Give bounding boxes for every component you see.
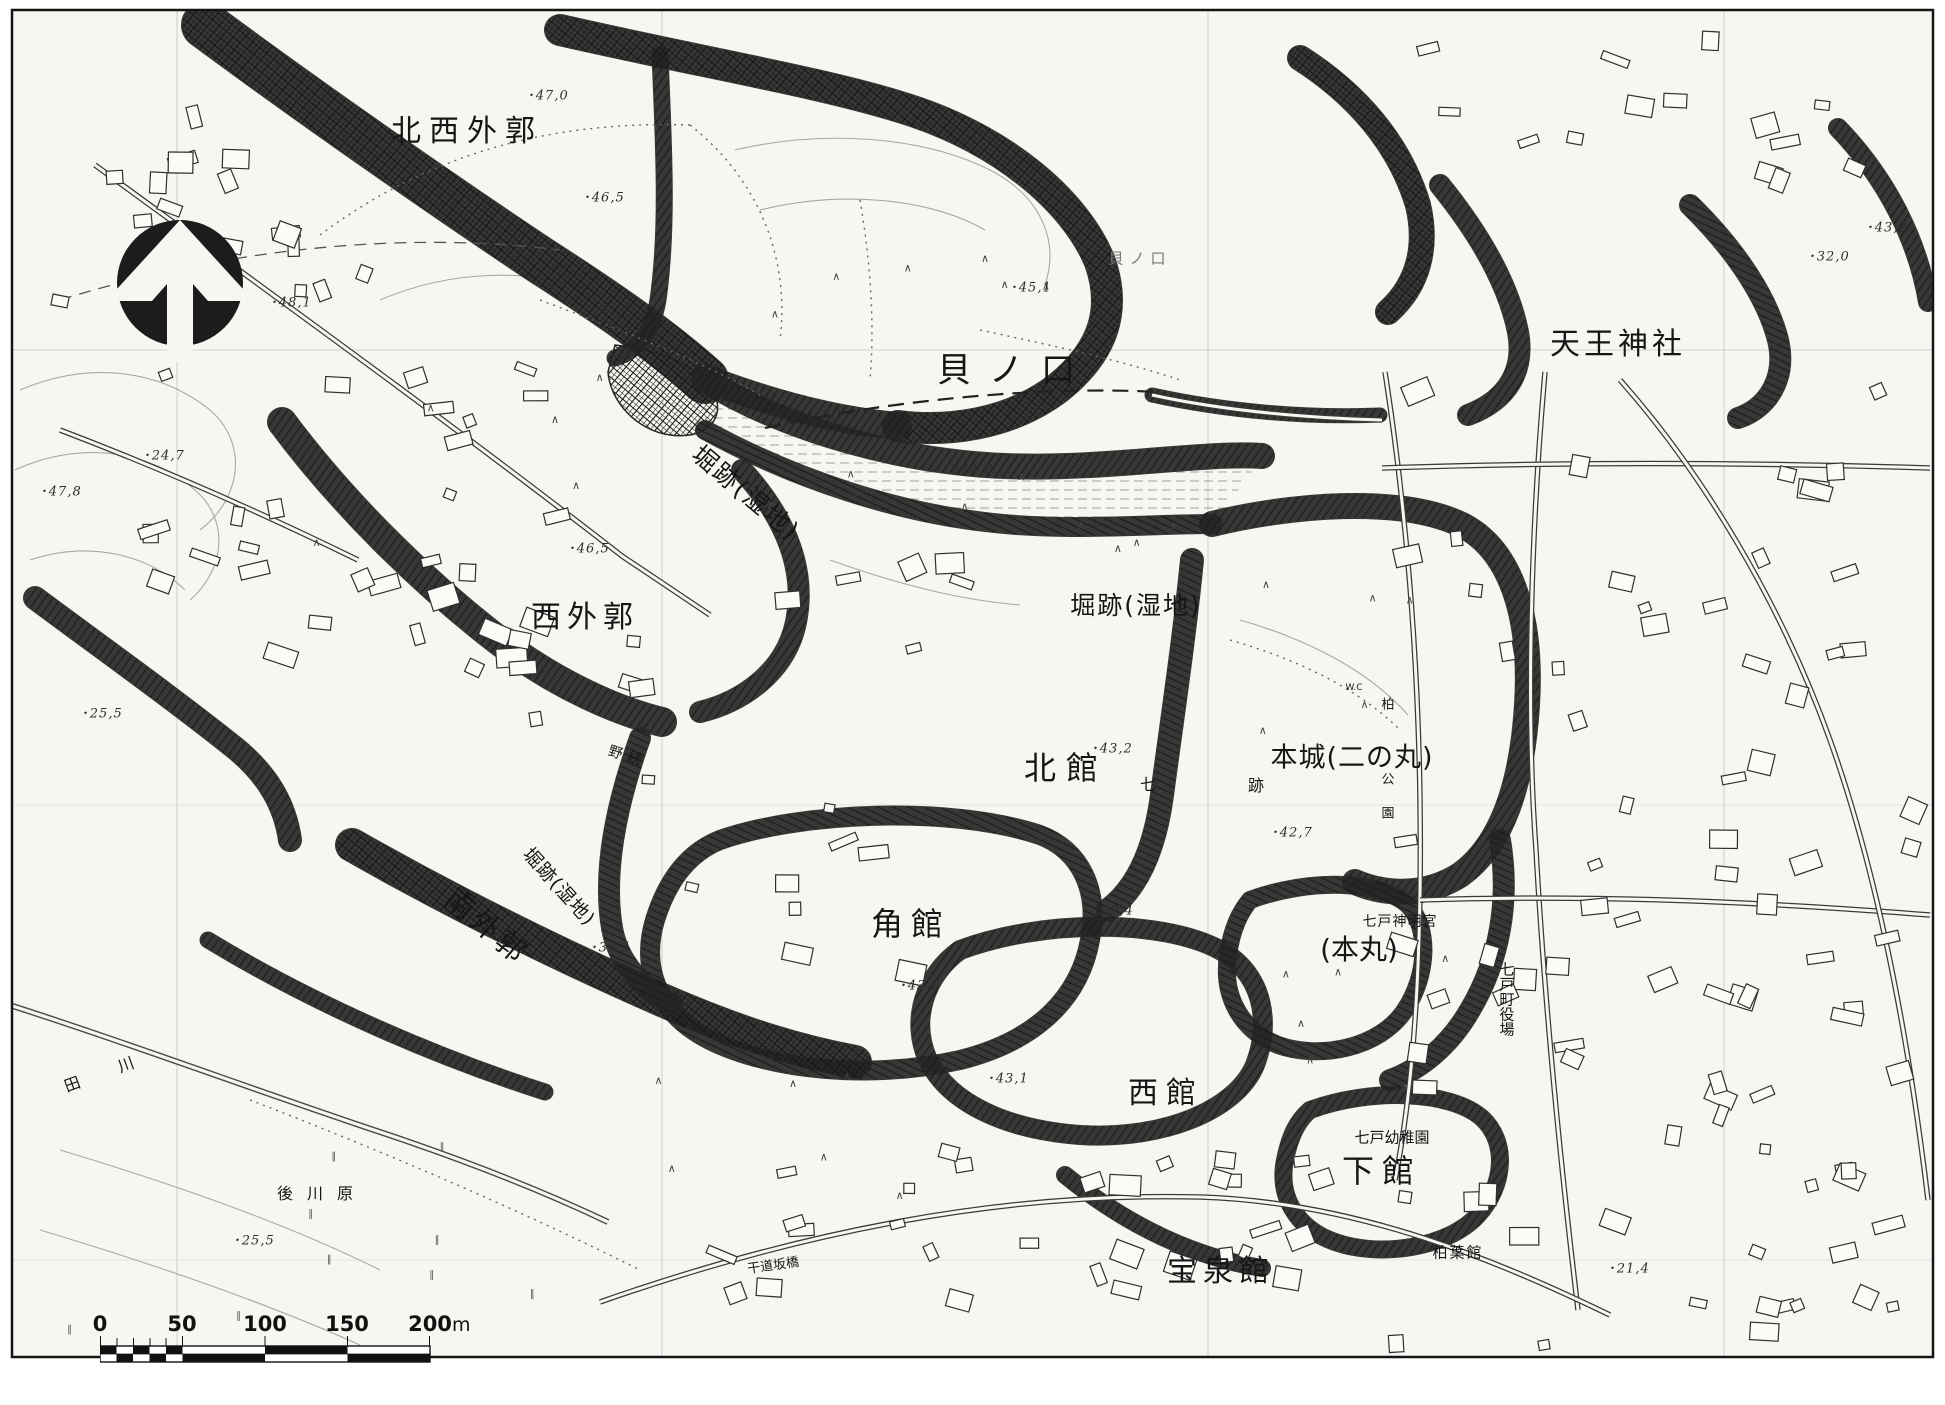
svg-text:∧: ∧ bbox=[1259, 724, 1267, 737]
label-wc: W.C bbox=[1345, 683, 1362, 693]
spot-elevation: 46,5 bbox=[585, 191, 624, 206]
svg-text:∧: ∧ bbox=[1133, 536, 1141, 549]
label-shichinohe-kindergarten: 七戸幼稚園 bbox=[1354, 1127, 1429, 1148]
spot-elevation: 46,5 bbox=[570, 542, 609, 557]
label-char-kashiwa: 柏 bbox=[1381, 694, 1394, 713]
label-nishi-gaikaku: 西外郭 bbox=[531, 592, 639, 636]
label-tenno-jinja: 天王神社 bbox=[1550, 319, 1686, 363]
svg-text:∧: ∧ bbox=[1170, 520, 1178, 533]
spot-elevation: 44,8 bbox=[954, 463, 993, 478]
svg-text:∧: ∧ bbox=[551, 413, 559, 426]
spot-elevation: 24,7 bbox=[145, 449, 184, 464]
label-shimodate: 下館 bbox=[1342, 1146, 1422, 1192]
svg-text:∧: ∧ bbox=[668, 1162, 676, 1175]
label-hosenkan: 宝泉館 bbox=[1167, 1246, 1275, 1290]
scale-unit: m bbox=[452, 1314, 471, 1336]
spot-elevation: 47,0 bbox=[529, 89, 568, 104]
label-kainokuchi: 貝ノ口 bbox=[937, 343, 1093, 392]
spot-elevation: 42,7 bbox=[1273, 826, 1312, 841]
svg-text:∧: ∧ bbox=[312, 536, 320, 549]
spot-elevation: 43,1 bbox=[989, 1072, 1028, 1087]
label-hakuyokan: 柏葉館 bbox=[1432, 1242, 1483, 1263]
svg-text:∧: ∧ bbox=[1077, 518, 1085, 531]
spot-elevation: 43,2 bbox=[1868, 221, 1907, 236]
svg-text:∧: ∧ bbox=[1262, 578, 1270, 591]
svg-text:∧: ∧ bbox=[961, 500, 969, 513]
label-ushirokawara: 後川原 bbox=[277, 1180, 367, 1204]
svg-text:∧: ∧ bbox=[596, 371, 604, 384]
svg-text:∧: ∧ bbox=[1360, 698, 1368, 711]
scale-tick-100: 100 bbox=[243, 1312, 287, 1336]
label-shichinohe-shinmeigu: 七戸神明宮 bbox=[1363, 911, 1438, 931]
scale-tick-0: 0 bbox=[93, 1312, 108, 1336]
label-char-ko: 公 bbox=[1381, 769, 1394, 788]
svg-text:∧: ∧ bbox=[847, 468, 855, 481]
svg-text:∧: ∧ bbox=[1441, 952, 1449, 965]
svg-text:∧: ∧ bbox=[771, 308, 779, 321]
label-nishidate: 西館 bbox=[1128, 1068, 1204, 1112]
svg-text:∧: ∧ bbox=[655, 1074, 663, 1087]
spot-elevation: 25,5 bbox=[235, 1234, 274, 1249]
label-honjo-ninomaru: 本城(二の丸) bbox=[1270, 736, 1433, 775]
spot-elevation: 43,2 bbox=[1093, 742, 1132, 757]
svg-text:∥: ∥ bbox=[327, 1254, 332, 1265]
svg-text:∧: ∧ bbox=[820, 1150, 828, 1163]
svg-text:∧: ∧ bbox=[1306, 1054, 1314, 1067]
label-honmaru: (本丸) bbox=[1320, 928, 1398, 968]
svg-text:∥: ∥ bbox=[440, 1142, 445, 1153]
label-hokusei-gaikaku: 北西外郭 bbox=[391, 106, 543, 150]
svg-text:∧: ∧ bbox=[1001, 278, 1009, 291]
svg-text:∧: ∧ bbox=[1114, 542, 1122, 555]
spot-elevation: 48,1 bbox=[272, 296, 311, 311]
scale-bar: 0 50 100 150 200 m bbox=[100, 1312, 480, 1370]
scale-bar-graphic bbox=[100, 1336, 440, 1368]
label-char-ato: 跡 bbox=[1248, 772, 1264, 796]
svg-text:∧: ∧ bbox=[1180, 684, 1188, 697]
svg-text:∥: ∥ bbox=[308, 1209, 313, 1220]
spot-elevation: 21,4 bbox=[1610, 1262, 1649, 1277]
svg-text:∧: ∧ bbox=[1369, 591, 1377, 604]
map-stage: ∧∧∧∧∧∧∧∧∧∧∧∧∧∧∧∧∧∧∧∧∧∧∧∧∧∧∧∧∧∧∧∧∧∧∧∧∥∥∥∥… bbox=[0, 0, 1945, 1405]
svg-text:∧: ∧ bbox=[904, 262, 912, 275]
svg-text:∧: ∧ bbox=[832, 270, 840, 283]
scale-tick-200: 200 bbox=[408, 1312, 452, 1336]
svg-text:∧: ∧ bbox=[1297, 1017, 1305, 1030]
spot-elevation: 32,0 bbox=[1810, 250, 1849, 265]
label-kainokuchi-small: 貝ノ口 bbox=[1108, 248, 1171, 269]
svg-text:∧: ∧ bbox=[572, 479, 580, 492]
svg-text:∧: ∧ bbox=[1406, 593, 1414, 606]
svg-text:∥: ∥ bbox=[530, 1289, 535, 1300]
spot-elevation: 39,4 bbox=[1094, 904, 1133, 919]
spot-elevation: 45,1 bbox=[1012, 281, 1051, 296]
spot-elevation: 25,5 bbox=[83, 707, 122, 722]
svg-text:∥: ∥ bbox=[331, 1151, 336, 1162]
svg-text:∧: ∧ bbox=[1017, 470, 1025, 483]
scale-tick-150: 150 bbox=[325, 1312, 369, 1336]
svg-text:∧: ∧ bbox=[981, 252, 989, 265]
scale-tick-50: 50 bbox=[167, 1312, 196, 1336]
svg-text:∧: ∧ bbox=[789, 1077, 797, 1090]
svg-text:∧: ∧ bbox=[896, 1189, 904, 1202]
map-paper bbox=[12, 10, 1933, 1357]
spot-elevation: 43,0 bbox=[901, 979, 940, 994]
spot-elevation: 47,8 bbox=[42, 485, 81, 500]
label-char-en: 園 bbox=[1381, 803, 1394, 822]
svg-text:∧: ∧ bbox=[843, 1070, 851, 1083]
label-kakudate: 角館 bbox=[871, 899, 951, 945]
label-horiato-shicchi-middle: 堀跡(湿地) bbox=[1070, 586, 1202, 622]
svg-text:∧: ∧ bbox=[1282, 968, 1290, 981]
svg-text:∥: ∥ bbox=[67, 1324, 72, 1335]
label-char-shichi: 七 bbox=[1140, 771, 1156, 795]
svg-text:∥: ∥ bbox=[429, 1270, 434, 1281]
svg-text:∥: ∥ bbox=[435, 1235, 440, 1246]
spot-elevation: 39,1 bbox=[592, 941, 631, 956]
svg-text:∧: ∧ bbox=[427, 402, 435, 415]
label-shichinohe-town-hall: 七戸町役場 bbox=[1497, 962, 1518, 1037]
